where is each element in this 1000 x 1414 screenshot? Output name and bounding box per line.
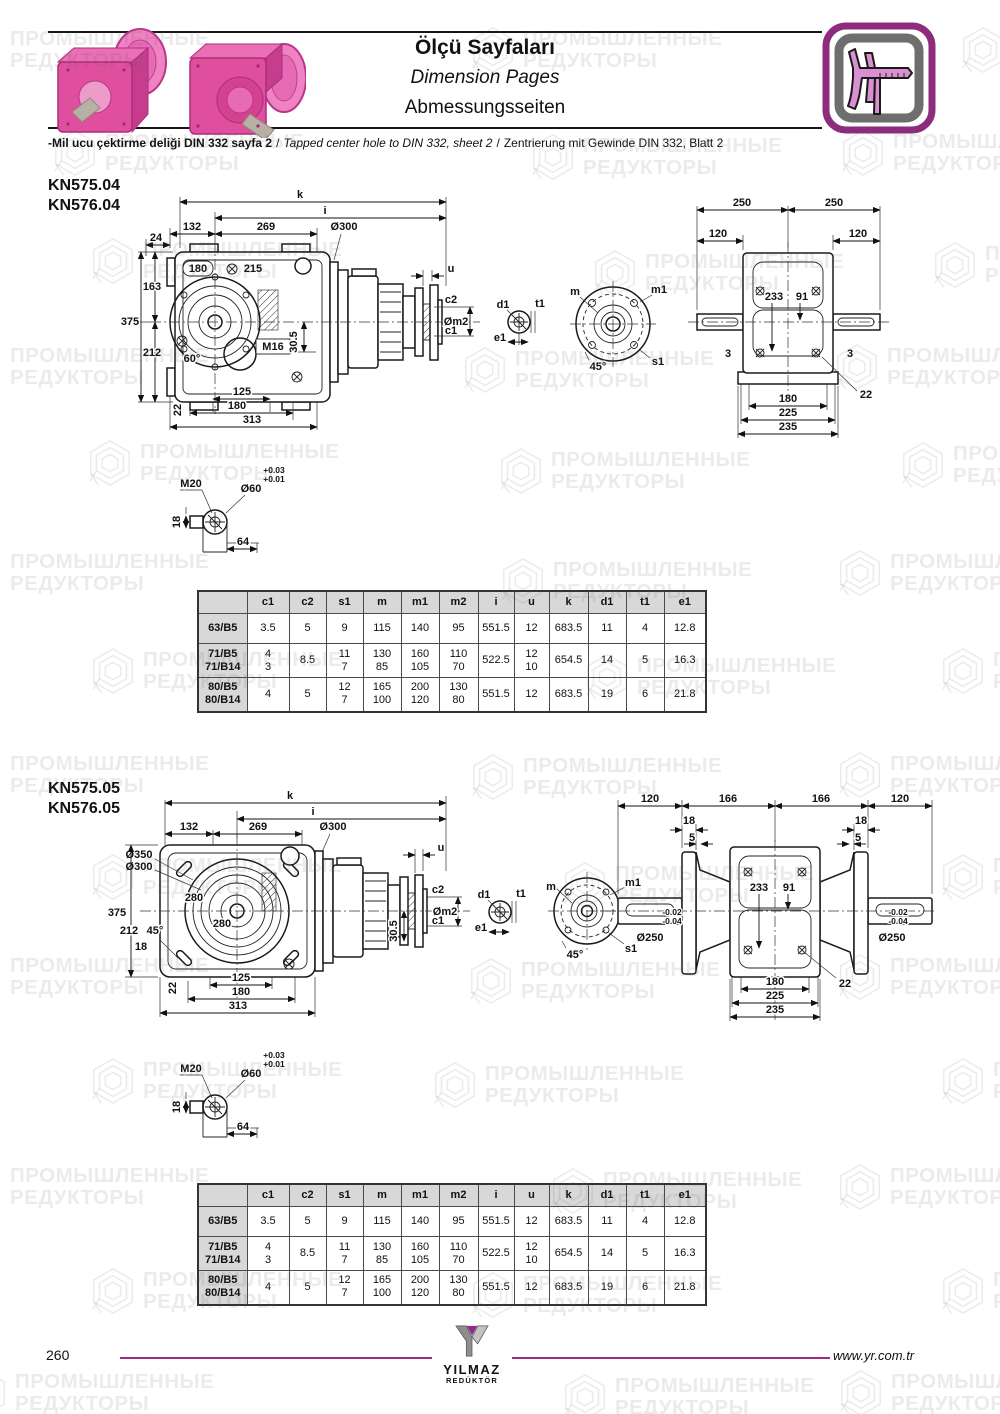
table-cell: 522.5 (478, 1237, 514, 1271)
dim-label: +0.01 (263, 1059, 285, 1069)
table-cell: 117 (326, 644, 363, 678)
dim-label: 18 (171, 1101, 183, 1113)
column-header: m1 (401, 1184, 439, 1207)
dim-label: M20 (180, 478, 201, 490)
watermark: ПРОМЫШЛЕННЫЕРЕДУКТОРЫ (958, 25, 1000, 75)
table-cell: 21.8 (664, 678, 706, 712)
table-cell: 13085 (363, 1237, 401, 1271)
dim-label: 24 (150, 232, 163, 244)
dim-label: d1 (478, 889, 491, 901)
dim-label: 3 (725, 348, 731, 360)
dim-label: +0.01 (263, 474, 285, 484)
dim-label: 250 (825, 197, 843, 209)
dim-label: 375 (108, 907, 126, 919)
row-label: 63/B5 (198, 614, 247, 644)
watermark-hex-icon (430, 1060, 480, 1110)
dim-label: 180 (189, 263, 207, 275)
watermark-hex-icon (838, 128, 888, 178)
table-cell: 5 (289, 1271, 326, 1305)
table-cell: 115 (363, 614, 401, 644)
dim-label: M16 (262, 341, 283, 353)
column-header: i (478, 1184, 514, 1207)
watermark-text: ПРОМЫШЛЕННЫЕРЕДУКТОРЫ (993, 1059, 1000, 1103)
flange-view: m m1 s1 45° (570, 281, 667, 373)
table-cell: 160105 (401, 644, 439, 678)
row-label: 71/B571/B14 (198, 644, 247, 678)
dim-label: Ø250 (879, 932, 906, 944)
table-cell: 5 (289, 614, 326, 644)
dim-label: 225 (779, 407, 797, 419)
watermark-hex-icon (0, 1162, 5, 1212)
dim-label: s1 (652, 356, 664, 368)
dim-label: 180 (779, 393, 797, 405)
table-cell: 140 (401, 614, 439, 644)
column-header: d1 (588, 1184, 626, 1207)
dim-label: m (546, 881, 556, 893)
watermark-text: ПРОМЫШЛЕННЫЕРЕДУКТОРЫ (485, 1063, 684, 1107)
dim-label: 215 (244, 263, 262, 275)
column-header: t1 (626, 591, 664, 614)
column-header: k (549, 591, 588, 614)
dim-label: Ø250 (637, 932, 664, 944)
table-cell: 12 (514, 678, 549, 712)
dim-label: 125 (233, 386, 251, 398)
dim-label: 22 (860, 389, 872, 401)
table-cell: 200120 (401, 1271, 439, 1305)
column-header: t1 (626, 1184, 664, 1207)
watermark: ПРОМЫШЛЕННЫЕРЕДУКТОРЫ (0, 1368, 214, 1414)
watermark: ПРОМЫШЛЕННЫЕРЕДУКТОРЫ (938, 852, 1000, 902)
watermark-text: ПРОМЫШЛЕННЫЕРЕДУКТОРЫ (891, 1371, 1000, 1414)
dim-label: Ø300 (320, 821, 347, 833)
column-header: m2 (439, 591, 478, 614)
dim-label: 45° (590, 361, 607, 373)
watermark: ПРОМЫШЛЕННЫЕРЕДУКТОРЫ (835, 548, 1000, 598)
dim-label: 235 (766, 1004, 784, 1016)
column-header: e1 (664, 591, 706, 614)
dim-label: t1 (516, 888, 526, 900)
dim-label: 163 (143, 281, 161, 293)
title-turkish: Ölçü Sayfaları (320, 33, 650, 63)
dim-label: s1 (625, 943, 637, 955)
watermark: ПРОМЫШЛЕННЫЕРЕДУКТОРЫ (496, 446, 750, 496)
note-separator: / (272, 136, 283, 150)
table-cell: 683.5 (549, 678, 588, 712)
column-header: u (514, 591, 549, 614)
table-corner (198, 591, 247, 614)
dim-label: c2 (445, 294, 457, 306)
table-cell: 9 (326, 1207, 363, 1237)
table-row: 71/B571/B14438.51171308516010511070522.5… (198, 1237, 706, 1271)
dim-label: 269 (257, 221, 275, 233)
watermark: ПРОМЫШЛЕННЫЕРЕДУКТОРЫ (938, 1056, 1000, 1106)
watermark-text: ПРОМЫШЛЕННЫЕРЕДУКТОРЫ (993, 649, 1000, 693)
dim-label: k (287, 790, 294, 802)
dim-label: -0.04 (888, 916, 908, 926)
watermark-text: ПРОМЫШЛЕННЫЕРЕДУКТОРЫ (985, 243, 1000, 287)
table-cell: 4 (626, 1207, 664, 1237)
column-header: c1 (247, 591, 289, 614)
table-cell: 551.5 (478, 1207, 514, 1237)
dim-label: 120 (891, 793, 909, 805)
dim-label: Ø300 (126, 861, 153, 873)
dim-label: e1 (475, 922, 487, 934)
dim-label: 120 (849, 228, 867, 240)
dim-label: u (438, 842, 445, 854)
watermark-text: ПРОМЫШЛЕННЫЕРЕДУКТОРЫ (551, 449, 750, 493)
dim-label: 30.5 (388, 920, 400, 941)
table-cell: 12.8 (664, 614, 706, 644)
catalog-page: Ölçü Sayfaları Dimension Pages Abmessung… (0, 0, 1000, 1414)
watermark-hex-icon (938, 1266, 988, 1316)
watermark-hex-icon (88, 646, 138, 696)
column-header: m (363, 591, 401, 614)
footer-rule-right (512, 1357, 830, 1359)
watermark-text: ПРОМЫШЛЕННЫЕРЕДУКТОРЫ (615, 1375, 814, 1414)
column-header: c1 (247, 1184, 289, 1207)
gearbox-rear-view: 250 250 120 120 233 91 3 3 22 180 225 23… (688, 197, 892, 438)
shaft-end-detail-1: M20 Ø60 +0.03 +0.01 18 64 (150, 455, 330, 565)
dim-label: 125 (232, 972, 250, 984)
note-german: Zentrierung mit Gewinde DIN 332, Blatt 2 (504, 136, 723, 150)
table-cell: 12 (514, 1207, 549, 1237)
column-header: i (478, 591, 514, 614)
watermark-hex-icon (938, 852, 988, 902)
watermark-hex-icon (0, 750, 5, 800)
watermark-text: ПРОМЫШЛЕННЫЕРЕДУКТОРЫ (15, 1371, 214, 1414)
dim-label: 375 (121, 316, 139, 328)
table-row: 80/B580/B144512716510020012013080551.512… (198, 1271, 706, 1305)
dim-label: 132 (183, 221, 201, 233)
table-cell: 9 (326, 614, 363, 644)
row-label: 63/B5 (198, 1207, 247, 1237)
watermark: ПРОМЫШЛЕННЫЕРЕДУКТОРЫ (0, 1162, 209, 1212)
dim-label: c1 (445, 325, 457, 337)
dim-label: 212 (120, 925, 138, 937)
website-link[interactable]: www.yr.com.tr (833, 1348, 914, 1363)
dim-label: 91 (796, 291, 808, 303)
table-cell: 95 (439, 1207, 478, 1237)
table-cell: 12 (514, 1271, 549, 1305)
table-row: 71/B571/B14438.51171308516010511070522.5… (198, 644, 706, 678)
dim-label: d1 (497, 299, 510, 311)
table-row: 63/B53.55911514095551.512683.511412.8 (198, 1207, 706, 1237)
table-cell: 165100 (363, 1271, 401, 1305)
dim-label: 166 (719, 793, 737, 805)
table-cell: 8.5 (289, 1237, 326, 1271)
column-header: m1 (401, 591, 439, 614)
watermark-hex-icon (560, 1372, 610, 1414)
watermark-text: ПРОМЫШЛЕННЫЕРЕДУКТОРЫ (890, 551, 1000, 595)
caliper-icon (822, 22, 936, 134)
dim-label: k (297, 189, 304, 201)
table-cell: 8.5 (289, 644, 326, 678)
table-cell: 683.5 (549, 614, 588, 644)
shaft-end-drawing: M20 Ø60 +0.03 +0.01 18 64 (171, 465, 285, 553)
table-cell: 200120 (401, 678, 439, 712)
watermark-text: ПРОМЫШЛЕННЫЕРЕДУКТОРЫ (953, 443, 1000, 487)
dim-label: -0.04 (662, 916, 682, 926)
dim-label: 45° (147, 925, 164, 937)
dim-label: 280 (185, 892, 203, 904)
watermark: ПРОМЫШЛЕННЫЕРЕДУКТОРЫ (835, 1162, 1000, 1212)
dim-label: m1 (625, 877, 641, 889)
dim-label: 30.5 (288, 331, 300, 352)
table-cell: 11 (588, 614, 626, 644)
dim-label: M20 (180, 1063, 201, 1075)
dim-label: Ø60 (241, 483, 262, 495)
brand-subtitle: REDÜKTÖR (436, 1376, 508, 1385)
dim-label: 5 (855, 832, 861, 844)
watermark: ПРОМЫШЛЕННЫЕРЕДУКТОРЫ (836, 1368, 1000, 1414)
shaft-end-detail-2: M20 Ø60 +0.03 +0.01 18 64 (150, 1040, 330, 1150)
watermark-hex-icon (88, 1056, 138, 1106)
din-note: -Mil ucu çektirme deliği DIN 332 sayfa 2… (48, 136, 723, 150)
table-cell: 127 (326, 678, 363, 712)
table-corner (198, 1184, 247, 1207)
table-cell: 683.5 (549, 1271, 588, 1305)
dim-label: i (323, 205, 326, 217)
watermark-hex-icon (958, 25, 1000, 75)
table-row: 80/B580/B144512716510020012013080551.512… (198, 678, 706, 712)
table-cell: 551.5 (478, 614, 514, 644)
table-cell: 522.5 (478, 644, 514, 678)
table-cell: 12 (514, 614, 549, 644)
table-row: 63/B53.55911514095551.512683.511412.8 (198, 614, 706, 644)
dim-label: e1 (494, 332, 506, 344)
watermark-hex-icon (836, 1368, 886, 1414)
watermark: ПРОМЫШЛЕННЫЕРЕДУКТОРЫ (898, 440, 1000, 490)
shaft-end-drawing: M20 Ø60 +0.03 +0.01 18 64 (171, 1050, 285, 1138)
gearbox-photo-left (58, 29, 166, 132)
watermark-hex-icon (938, 1056, 988, 1106)
table-cell: 4 (247, 1271, 289, 1305)
column-header: c2 (289, 1184, 326, 1207)
dim-label: i (311, 806, 314, 818)
table-cell: 12.8 (664, 1207, 706, 1237)
dim-label: Ø60 (241, 1068, 262, 1080)
dim-label: 45° (567, 949, 584, 961)
dim-label: c1 (432, 915, 444, 927)
brand-logo: YILMAZ REDÜKTÖR (436, 1324, 508, 1385)
dim-label: 120 (641, 793, 659, 805)
title-german: Abmessungsseiten (320, 93, 650, 123)
dim-label: 91 (783, 882, 795, 894)
dim-label: c2 (432, 884, 444, 896)
table-cell: 19 (588, 678, 626, 712)
table-cell: 21.8 (664, 1271, 706, 1305)
table-cell: 6 (626, 678, 664, 712)
table-cell: 11070 (439, 644, 478, 678)
table-cell: 6 (626, 1271, 664, 1305)
watermark: ПРОМЫШЛЕННЫЕРЕДУКТОРЫ (930, 240, 1000, 290)
watermark-text: ПРОМЫШЛЕННЫЕРЕДУКТОРЫ (890, 1165, 1000, 1209)
table-cell: 551.5 (478, 1271, 514, 1305)
note-turkish: -Mil ucu çektirme deliği DIN 332 sayfa 2 (48, 136, 272, 150)
column-header: d1 (588, 591, 626, 614)
table-cell: 683.5 (549, 1207, 588, 1237)
dim-label: t1 (535, 298, 545, 310)
gearbox-rear-view: 120 166 166 120 18 5 18 5 233 91 -0.02 -… (600, 793, 935, 1021)
gearbox-main-view (140, 835, 470, 1000)
table-cell: 1210 (514, 1237, 549, 1271)
watermark-hex-icon (0, 1368, 10, 1414)
dimension-table-2: c1c2s1mm1m2iukd1t1e163/B53.5591151409555… (197, 1183, 707, 1306)
dimension-drawing-kn575-04: k i 132 269 Ø300 24 180 215 163 375 212 … (95, 188, 905, 450)
table-cell: 3.5 (247, 614, 289, 644)
watermark: ПРОМЫШЛЕННЫЕРЕДУКТОРЫ (838, 128, 1000, 178)
dim-label: 64 (237, 1121, 250, 1133)
table-cell: 654.5 (549, 1237, 588, 1271)
table-cell: 11 (588, 1207, 626, 1237)
dim-label: 180 (766, 976, 784, 988)
title-english: Dimension Pages (320, 63, 650, 93)
dim-label: 120 (709, 228, 727, 240)
row-label: 80/B580/B14 (198, 1271, 247, 1305)
dim-label: 166 (812, 793, 830, 805)
table-cell: 140 (401, 1207, 439, 1237)
table-cell: 5 (289, 678, 326, 712)
dim-label: 313 (229, 1000, 247, 1012)
dim-label: 3 (847, 348, 853, 360)
column-header: c2 (289, 591, 326, 614)
column-header: s1 (326, 591, 363, 614)
footer-rule-left (120, 1357, 432, 1359)
table-cell: 95 (439, 614, 478, 644)
watermark-text: ПРОМЫШЛЕННЫЕРЕДУКТОРЫ (893, 131, 1000, 175)
dim-label: 180 (232, 986, 250, 998)
table-cell: 117 (326, 1237, 363, 1271)
watermark-hex-icon (938, 646, 988, 696)
dim-label: 64 (237, 536, 250, 548)
table-cell: 43 (247, 644, 289, 678)
watermark: ПРОМЫШЛЕННЫЕРЕДУКТОРЫ (560, 1372, 814, 1414)
row-label: 80/B580/B14 (198, 678, 247, 712)
dim-label: 18 (855, 815, 867, 827)
dim-label: 5 (689, 832, 695, 844)
table-cell: 43 (247, 1237, 289, 1271)
watermark-hex-icon (835, 1162, 885, 1212)
column-header: k (549, 1184, 588, 1207)
gearbox-photo-right (190, 44, 306, 138)
dim-label: 212 (143, 347, 161, 359)
note-separator: / (492, 136, 503, 150)
table-cell: 4 (247, 678, 289, 712)
table-cell: 115 (363, 1207, 401, 1237)
dim-label: 22 (167, 982, 179, 994)
dim-label: 280 (213, 918, 231, 930)
watermark-hex-icon (0, 952, 5, 1002)
column-header: m (363, 1184, 401, 1207)
table-cell: 11070 (439, 1237, 478, 1271)
dim-label: 22 (839, 978, 851, 990)
dim-label: 18 (683, 815, 695, 827)
dim-label: 22 (172, 404, 184, 416)
note-english: Tapped center hole to DIN 332, sheet 2 (283, 136, 492, 150)
watermark-hex-icon (88, 1266, 138, 1316)
watermark: ПРОМЫШЛЕННЫЕРЕДУКТОРЫ (938, 646, 1000, 696)
column-header: e1 (664, 1184, 706, 1207)
table-cell: 5 (626, 644, 664, 678)
product-photo-gearboxes (44, 18, 306, 138)
watermark-hex-icon (0, 25, 5, 75)
table-cell: 14 (588, 644, 626, 678)
column-header: s1 (326, 1184, 363, 1207)
table-cell: 13080 (439, 1271, 478, 1305)
row-label: 71/B571/B14 (198, 1237, 247, 1271)
dim-label: u (448, 263, 455, 275)
dim-label: 233 (765, 291, 783, 303)
watermark-hex-icon (930, 240, 980, 290)
watermark-text: ПРОМЫШЛЕННЫЕРЕДУКТОРЫ (993, 855, 1000, 899)
table-cell: 19 (588, 1271, 626, 1305)
column-header: m2 (439, 1184, 478, 1207)
table-cell: 16.3 (664, 644, 706, 678)
watermark: ПРОМЫШЛЕННЫЕРЕДУКТОРЫ (938, 1266, 1000, 1316)
table-cell: 14 (588, 1237, 626, 1271)
watermark-text: ПРОМЫШЛЕННЫЕРЕДУКТОРЫ (993, 1269, 1000, 1313)
table-cell: 16.3 (664, 1237, 706, 1271)
dim-label: 18 (171, 516, 183, 528)
dim-label: 269 (249, 821, 267, 833)
dim-label: 313 (243, 414, 261, 426)
watermark-hex-icon (0, 342, 5, 392)
dim-label: 18 (135, 941, 147, 953)
brand-name: YILMAZ (436, 1363, 508, 1376)
table-cell: 4 (626, 614, 664, 644)
shaft-section-detail: d1 t1 e1 (475, 888, 526, 934)
shaft-section-detail: d1 t1 e1 (494, 298, 545, 344)
table-cell: 13085 (363, 644, 401, 678)
table-cell: 127 (326, 1271, 363, 1305)
dim-label: m (570, 286, 580, 298)
dim-label: Ø300 (331, 221, 358, 233)
dim-label: 225 (766, 990, 784, 1002)
table-cell: 5 (626, 1237, 664, 1271)
dim-label: m1 (651, 284, 667, 296)
watermark-hex-icon (496, 446, 546, 496)
table-cell: 160105 (401, 1237, 439, 1271)
yilmaz-logo-icon (449, 1324, 495, 1358)
watermark: ПРОМЫШЛЕННЫЕРЕДУКТОРЫ (430, 1060, 684, 1110)
dim-label: 233 (750, 882, 768, 894)
watermark-hex-icon (0, 548, 5, 598)
watermark-text: ПРОМЫШЛЕННЫЕРЕДУКТОРЫ (10, 1165, 209, 1209)
table-cell: 5 (289, 1207, 326, 1237)
table-cell: 654.5 (549, 644, 588, 678)
table-cell: 551.5 (478, 678, 514, 712)
dimension-drawing-kn575-05: k i 132 269 Ø300 Ø350 Ø300 280 280 375 2… (95, 788, 935, 1033)
table-cell: 165100 (363, 678, 401, 712)
table-cell: 13080 (439, 678, 478, 712)
dim-label: 180 (228, 400, 246, 412)
dim-label: 250 (733, 197, 751, 209)
table-cell: 1210 (514, 644, 549, 678)
watermark-hex-icon (835, 548, 885, 598)
dim-label: Ø350 (126, 849, 153, 861)
page-number: 260 (46, 1347, 69, 1363)
dim-label: 60° (184, 353, 201, 365)
page-title: Ölçü Sayfaları Dimension Pages Abmessung… (320, 33, 650, 123)
column-header: u (514, 1184, 549, 1207)
dim-label: 132 (180, 821, 198, 833)
dimension-table-1: c1c2s1mm1m2iukd1t1e163/B53.5591151409555… (197, 590, 707, 713)
table-cell: 3.5 (247, 1207, 289, 1237)
watermark-hex-icon (898, 440, 948, 490)
dim-label: 235 (779, 421, 797, 433)
